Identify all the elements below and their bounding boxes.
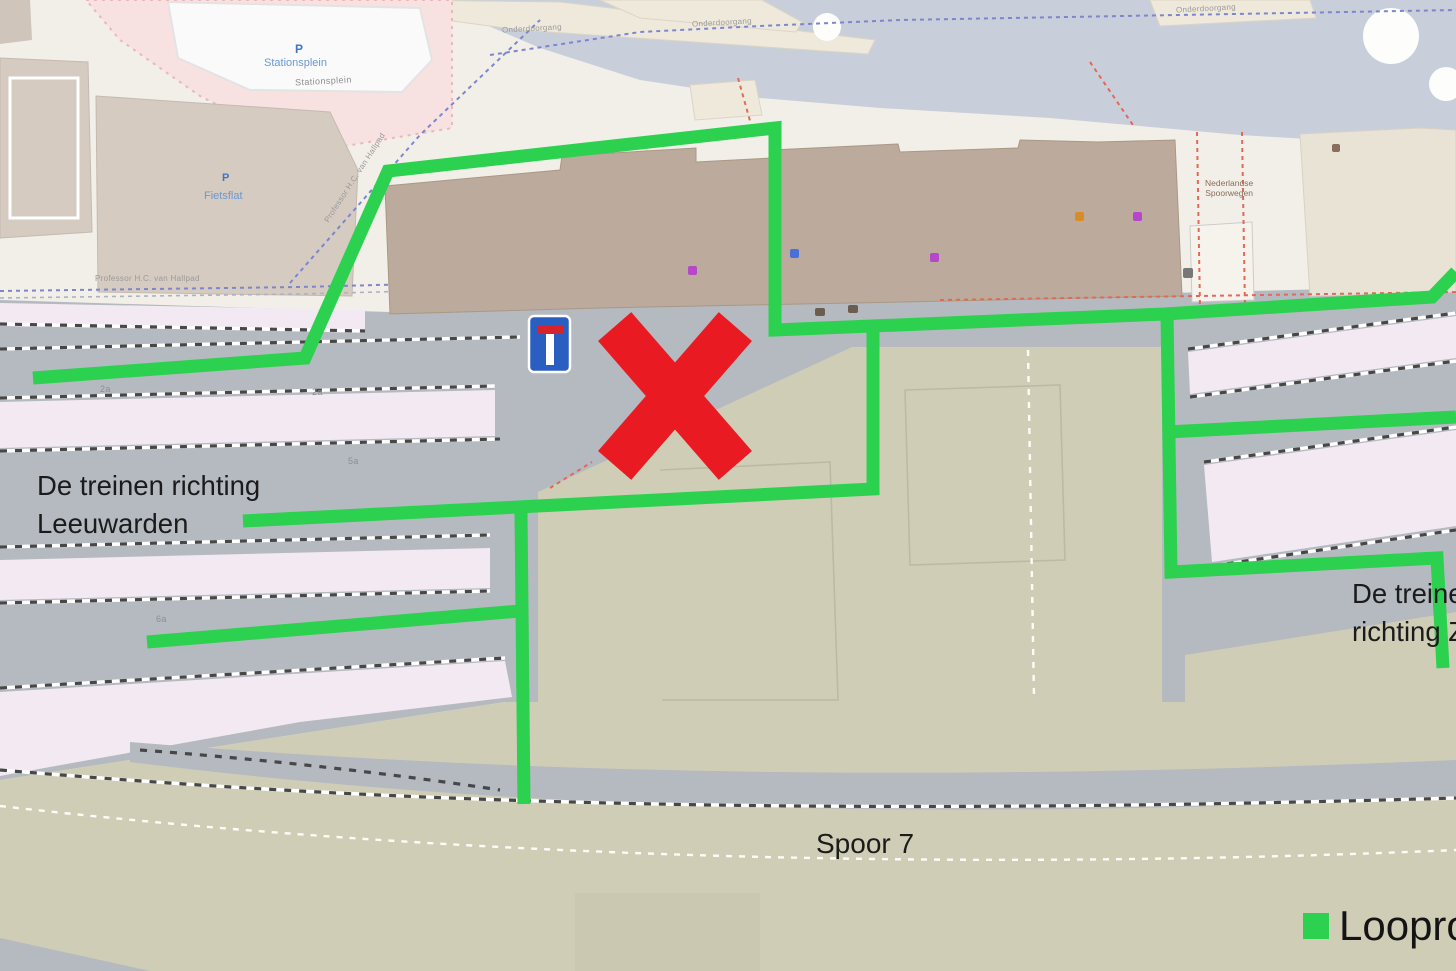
right-direction-label: De treinen richting Zwolle (1352, 575, 1456, 651)
elevator-icon (1183, 268, 1193, 278)
station-building (385, 140, 1182, 314)
legend-swatch (1302, 912, 1330, 940)
bench-icon (848, 305, 858, 313)
corner-building (0, 0, 32, 44)
poi-shop-icon (688, 266, 697, 275)
poi-amenity-icon (1075, 212, 1084, 221)
platform-label-5a: 5a (348, 456, 359, 466)
railway-company-line2: Spoorwegen (1205, 188, 1253, 198)
poi-info-icon (790, 249, 799, 258)
legend-swatch-rect (1303, 913, 1329, 939)
poi-shop-icon (930, 253, 939, 262)
pier-finger (690, 80, 762, 120)
track-label: Spoor 7 (816, 828, 914, 860)
railway-company-label: Nederlandse Spoorwegen (1205, 178, 1253, 198)
sign-crossbar (537, 325, 563, 334)
poi-museum-icon (1332, 144, 1340, 152)
platform-label-6a: 6a (156, 614, 167, 624)
east-block (1300, 128, 1456, 296)
poi-shop-icon (1133, 212, 1142, 221)
platform-label-2a-east: 2a (312, 387, 323, 397)
left-direction-line1: De treinen richting (37, 467, 260, 505)
bench-icon (815, 308, 825, 316)
bike-parking-icon: P (222, 172, 229, 184)
railway-company-line1: Nederlandse (1205, 178, 1253, 188)
south-parcel (575, 893, 760, 971)
dead-end-sign-icon (529, 316, 570, 372)
platform-label-2a-west: 2a (100, 384, 111, 394)
station-map-screenshot: De treinen richting Leeuwarden De treine… (0, 0, 1456, 971)
bike-parking-label: Fietsflat (204, 190, 243, 202)
right-direction-line2: richting Zwolle (1352, 613, 1456, 651)
legend-label: Looproute (1339, 902, 1456, 950)
water-circle-large (1363, 8, 1419, 64)
left-direction-label: De treinen richting Leeuwarden (37, 467, 260, 543)
street-label-hallpad: Professor H.C. van Hallpad (95, 274, 200, 283)
left-direction-line2: Leeuwarden (37, 505, 260, 543)
walking-route-platform-vertical (521, 513, 524, 804)
parking-icon: P (295, 42, 303, 56)
sign-stem (546, 334, 554, 365)
legend: Looproute (1302, 902, 1456, 950)
parking-area-label: Stationsplein (264, 57, 327, 69)
water-circle-small (813, 13, 841, 41)
right-direction-line1: De treinen (1352, 575, 1456, 613)
